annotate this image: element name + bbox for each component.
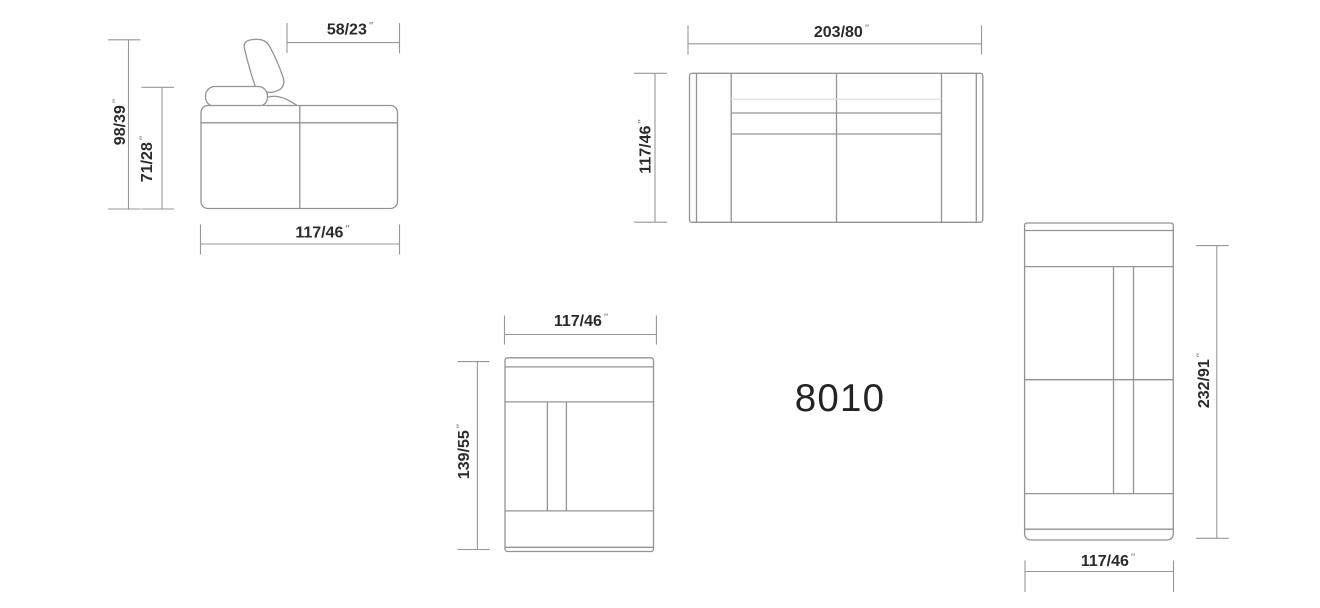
svg-text:232/91″: 232/91″ bbox=[1195, 352, 1213, 408]
svg-text:117/46″: 117/46″ bbox=[554, 312, 609, 330]
svg-text:8010: 8010 bbox=[795, 377, 885, 420]
svg-text:117/46″: 117/46″ bbox=[1081, 552, 1136, 570]
svg-text:139/55″: 139/55″ bbox=[455, 423, 473, 479]
svg-text:71/28″: 71/28″ bbox=[138, 135, 156, 182]
svg-text:98/39″: 98/39″ bbox=[111, 98, 129, 145]
svg-text:58/23″: 58/23″ bbox=[327, 21, 374, 39]
svg-text:117/46″: 117/46″ bbox=[637, 119, 655, 174]
svg-text:117/46″: 117/46″ bbox=[295, 223, 350, 241]
svg-text:203/80″: 203/80″ bbox=[814, 23, 870, 41]
